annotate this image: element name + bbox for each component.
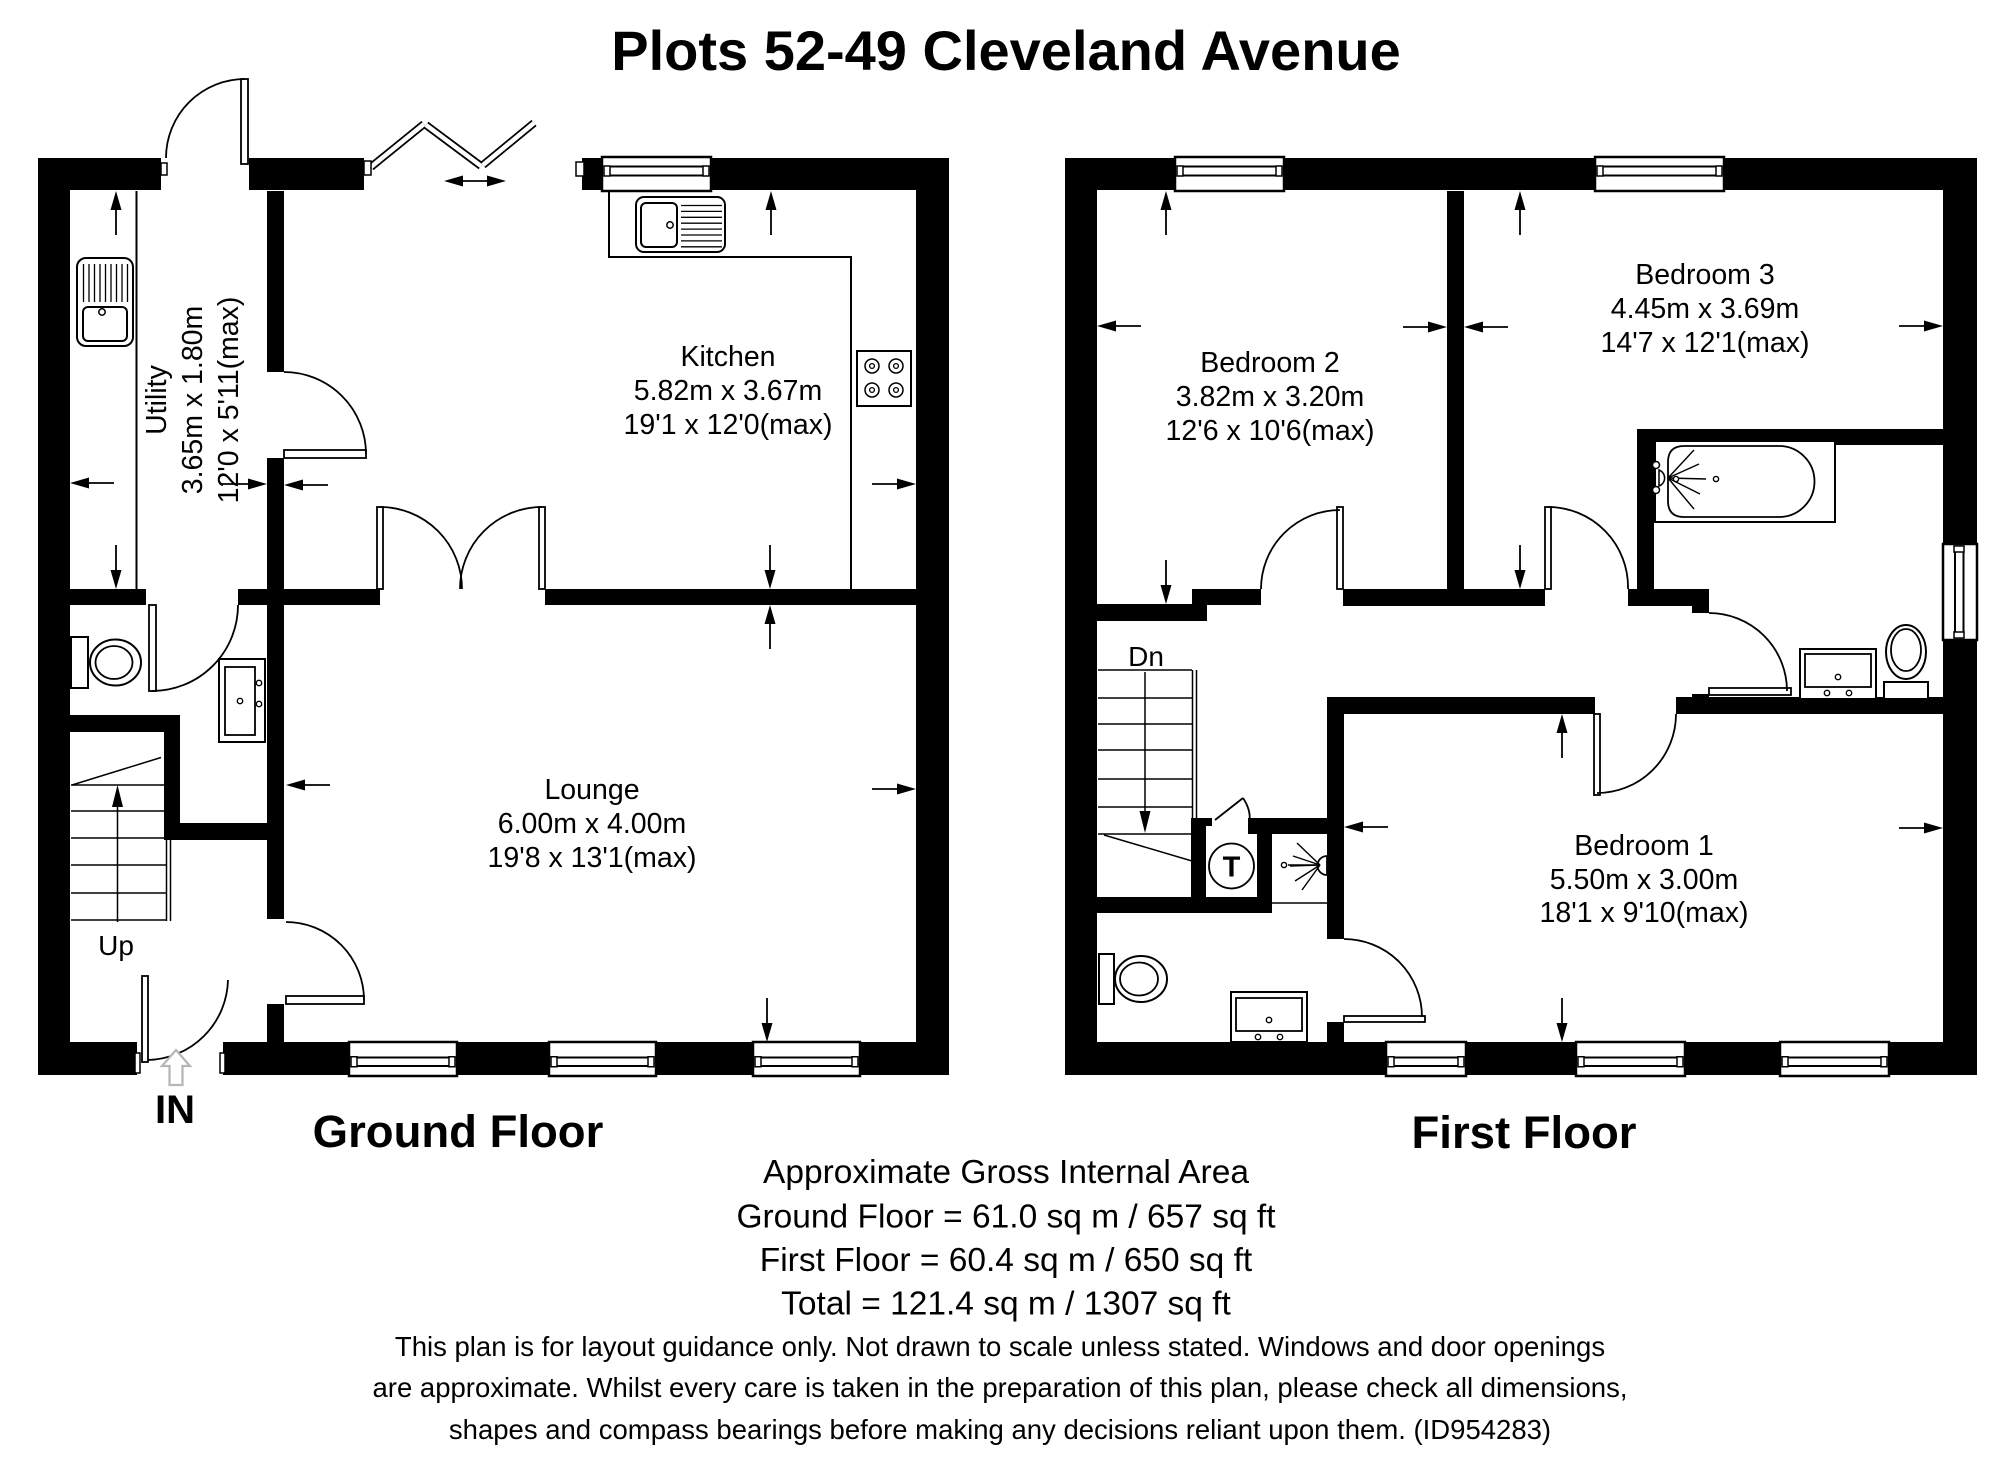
svg-text:6.00m x 4.00m: 6.00m x 4.00m <box>498 808 687 840</box>
svg-text:Dn: Dn <box>1128 641 1164 672</box>
svg-text:are approximate. Whilst every: are approximate. Whilst every care is ta… <box>373 1372 1628 1403</box>
svg-text:T: T <box>1223 852 1241 884</box>
svg-text:Kitchen: Kitchen <box>680 341 775 373</box>
svg-text:Utility: Utility <box>141 364 173 434</box>
svg-text:Plots 52-49 Cleveland Avenue: Plots 52-49 Cleveland Avenue <box>611 19 1401 82</box>
svg-text:12'6 x 10'6(max): 12'6 x 10'6(max) <box>1166 415 1375 447</box>
svg-text:3.65m x 1.80m: 3.65m x 1.80m <box>177 306 209 495</box>
svg-text:Bedroom 1: Bedroom 1 <box>1574 830 1713 862</box>
svg-text:Lounge: Lounge <box>544 774 639 806</box>
svg-text:Total = 121.4 sq m / 1307 sq f: Total = 121.4 sq m / 1307 sq ft <box>781 1286 1231 1323</box>
svg-text:19'8 x 13'1(max): 19'8 x 13'1(max) <box>488 842 697 874</box>
svg-text:Up: Up <box>98 930 134 961</box>
svg-text:Bedroom 2: Bedroom 2 <box>1200 347 1339 379</box>
svg-text:This plan is for layout guidan: This plan is for layout guidance only. N… <box>395 1331 1605 1362</box>
svg-text:14'7 x 12'1(max): 14'7 x 12'1(max) <box>1601 327 1810 359</box>
svg-text:IN: IN <box>155 1088 195 1132</box>
svg-text:Ground Floor: Ground Floor <box>313 1106 604 1157</box>
svg-text:4.45m x 3.69m: 4.45m x 3.69m <box>1611 293 1800 325</box>
svg-text:19'1 x 12'0(max): 19'1 x 12'0(max) <box>624 409 833 441</box>
svg-text:First Floor: First Floor <box>1412 1107 1637 1158</box>
svg-text:5.82m x 3.67m: 5.82m x 3.67m <box>634 375 823 407</box>
svg-text:First Floor = 60.4 sq m / 650: First Floor = 60.4 sq m / 650 sq ft <box>760 1242 1253 1279</box>
svg-text:Bedroom 3: Bedroom 3 <box>1635 259 1774 291</box>
svg-text:3.82m x 3.20m: 3.82m x 3.20m <box>1176 381 1365 413</box>
svg-text:5.50m x 3.00m: 5.50m x 3.00m <box>1550 864 1739 896</box>
svg-text:Ground Floor = 61.0 sq m / 657: Ground Floor = 61.0 sq m / 657 sq ft <box>736 1199 1276 1236</box>
svg-text:18'1 x 9'10(max): 18'1 x 9'10(max) <box>1540 897 1749 929</box>
svg-text:Approximate Gross Internal Are: Approximate Gross Internal Area <box>763 1154 1249 1191</box>
svg-text:12'0 x 5'11(max): 12'0 x 5'11(max) <box>213 297 245 504</box>
svg-text:shapes and compass bearings be: shapes and compass bearings before makin… <box>449 1414 1551 1445</box>
